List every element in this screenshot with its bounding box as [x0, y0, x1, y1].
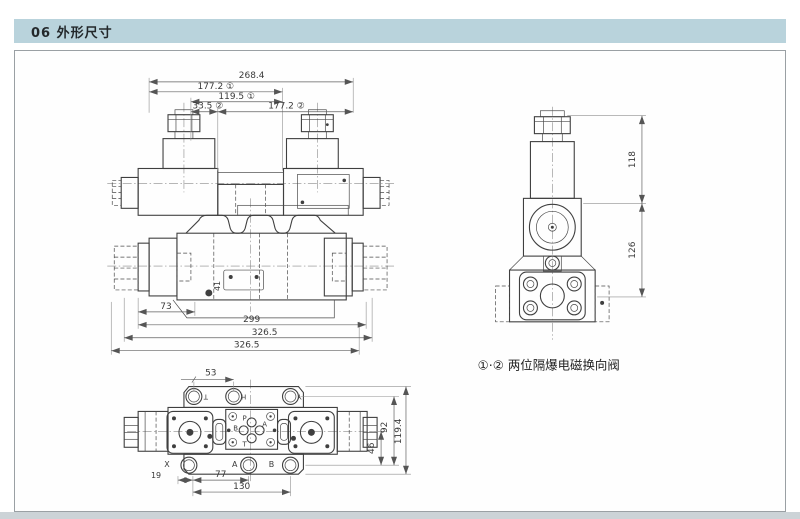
catalog-page: 06 外形尺寸 [0, 0, 800, 519]
port-label-a-bottom: A [232, 460, 238, 469]
side-view: 118 126 [496, 107, 646, 340]
top-view: T H Y X A B [124, 369, 411, 496]
dimension-drawing: 41 268.4 177.2 ① 119. [15, 51, 785, 511]
dim-77: 77 [215, 470, 226, 480]
drawing-caption: ①·② 两位隔爆电磁换向阀 [478, 358, 620, 373]
dim-119-4: 119.4 [394, 418, 404, 444]
dim-126: 126 [628, 241, 638, 258]
port-label-t-face: T [242, 440, 248, 448]
dim-92: 92 [380, 422, 390, 433]
page-footer-strip [0, 512, 800, 519]
dim-33-5: 33.5 ② [192, 102, 223, 112]
dim-177-2-1: 177.2 ① [198, 82, 235, 92]
mounting-face: P A B T [226, 409, 278, 449]
port-label-x: X [164, 460, 170, 469]
dim-299: 299 [243, 315, 260, 325]
port-label-a-face: A [262, 420, 267, 428]
dim-326-upper: 326.5 [252, 328, 278, 338]
dim-118: 118 [628, 151, 638, 168]
section-header: 06 外形尺寸 [14, 19, 786, 43]
section-title: 06 外形尺寸 [14, 22, 113, 41]
dim-41: 41 [213, 281, 222, 291]
port-label-p: P [243, 414, 247, 422]
top-view-right-dimensions: 46 92 119.4 [300, 387, 411, 475]
dim-130: 130 [233, 482, 250, 492]
port-label-t-top: T [203, 393, 209, 401]
dim-73: 73 [160, 302, 171, 312]
dim-326-lower: 326.5 [234, 341, 260, 351]
front-view-top-dimensions: 268.4 177.2 ① 119.5 ① 33.5 ② 177.2 ② [149, 71, 353, 171]
dim-177-2-2: 177.2 ② [268, 102, 305, 112]
front-view-bottom-dimensions: 73 299 326.5 326.5 [111, 298, 372, 355]
dim-53: 53 [205, 369, 216, 379]
port-label-b-bottom: B [269, 460, 274, 469]
dim-46: 46 [367, 442, 377, 454]
front-view: 41 268.4 177.2 ① 119. [107, 71, 396, 355]
port-label-h: H [241, 393, 246, 401]
right-solenoid [284, 110, 390, 216]
position-41-dot [205, 289, 212, 296]
port-label-b-face: B [233, 424, 238, 432]
dim-119-5: 119.5 ① [218, 92, 255, 102]
dim-19: 19 [151, 471, 161, 480]
left-solenoid [112, 110, 218, 216]
drawing-sheet: 41 268.4 177.2 ① 119. [14, 50, 786, 512]
dim-268-4: 268.4 [239, 71, 265, 81]
